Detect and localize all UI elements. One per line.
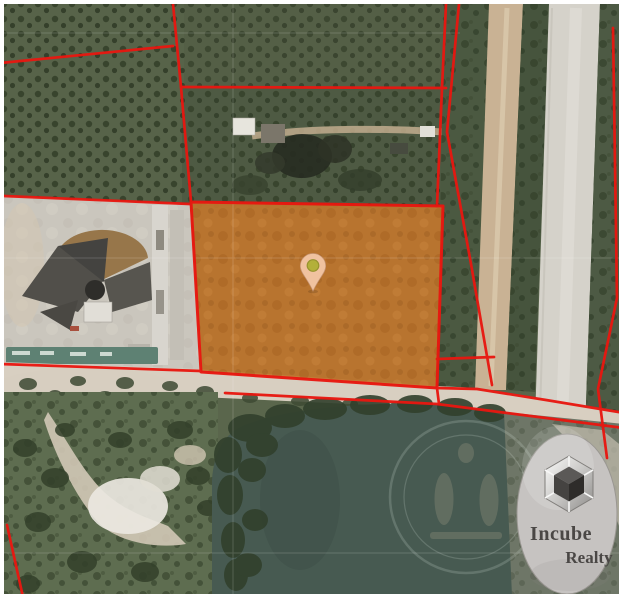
yard-building-strip [152,205,168,365]
brand-name-line2: Realty [565,548,613,567]
industrial-yard [0,196,202,371]
satellite-map: Incube Realty [0,0,624,600]
scrubland-bottom-left [0,392,219,598]
farm-building [233,118,255,135]
listing-map-image: Incube Realty [0,0,624,600]
brand-name-line1: Incube [530,523,592,545]
highlighted-parcel [191,202,443,388]
farmstead [182,88,470,206]
yard-shed [84,302,112,322]
